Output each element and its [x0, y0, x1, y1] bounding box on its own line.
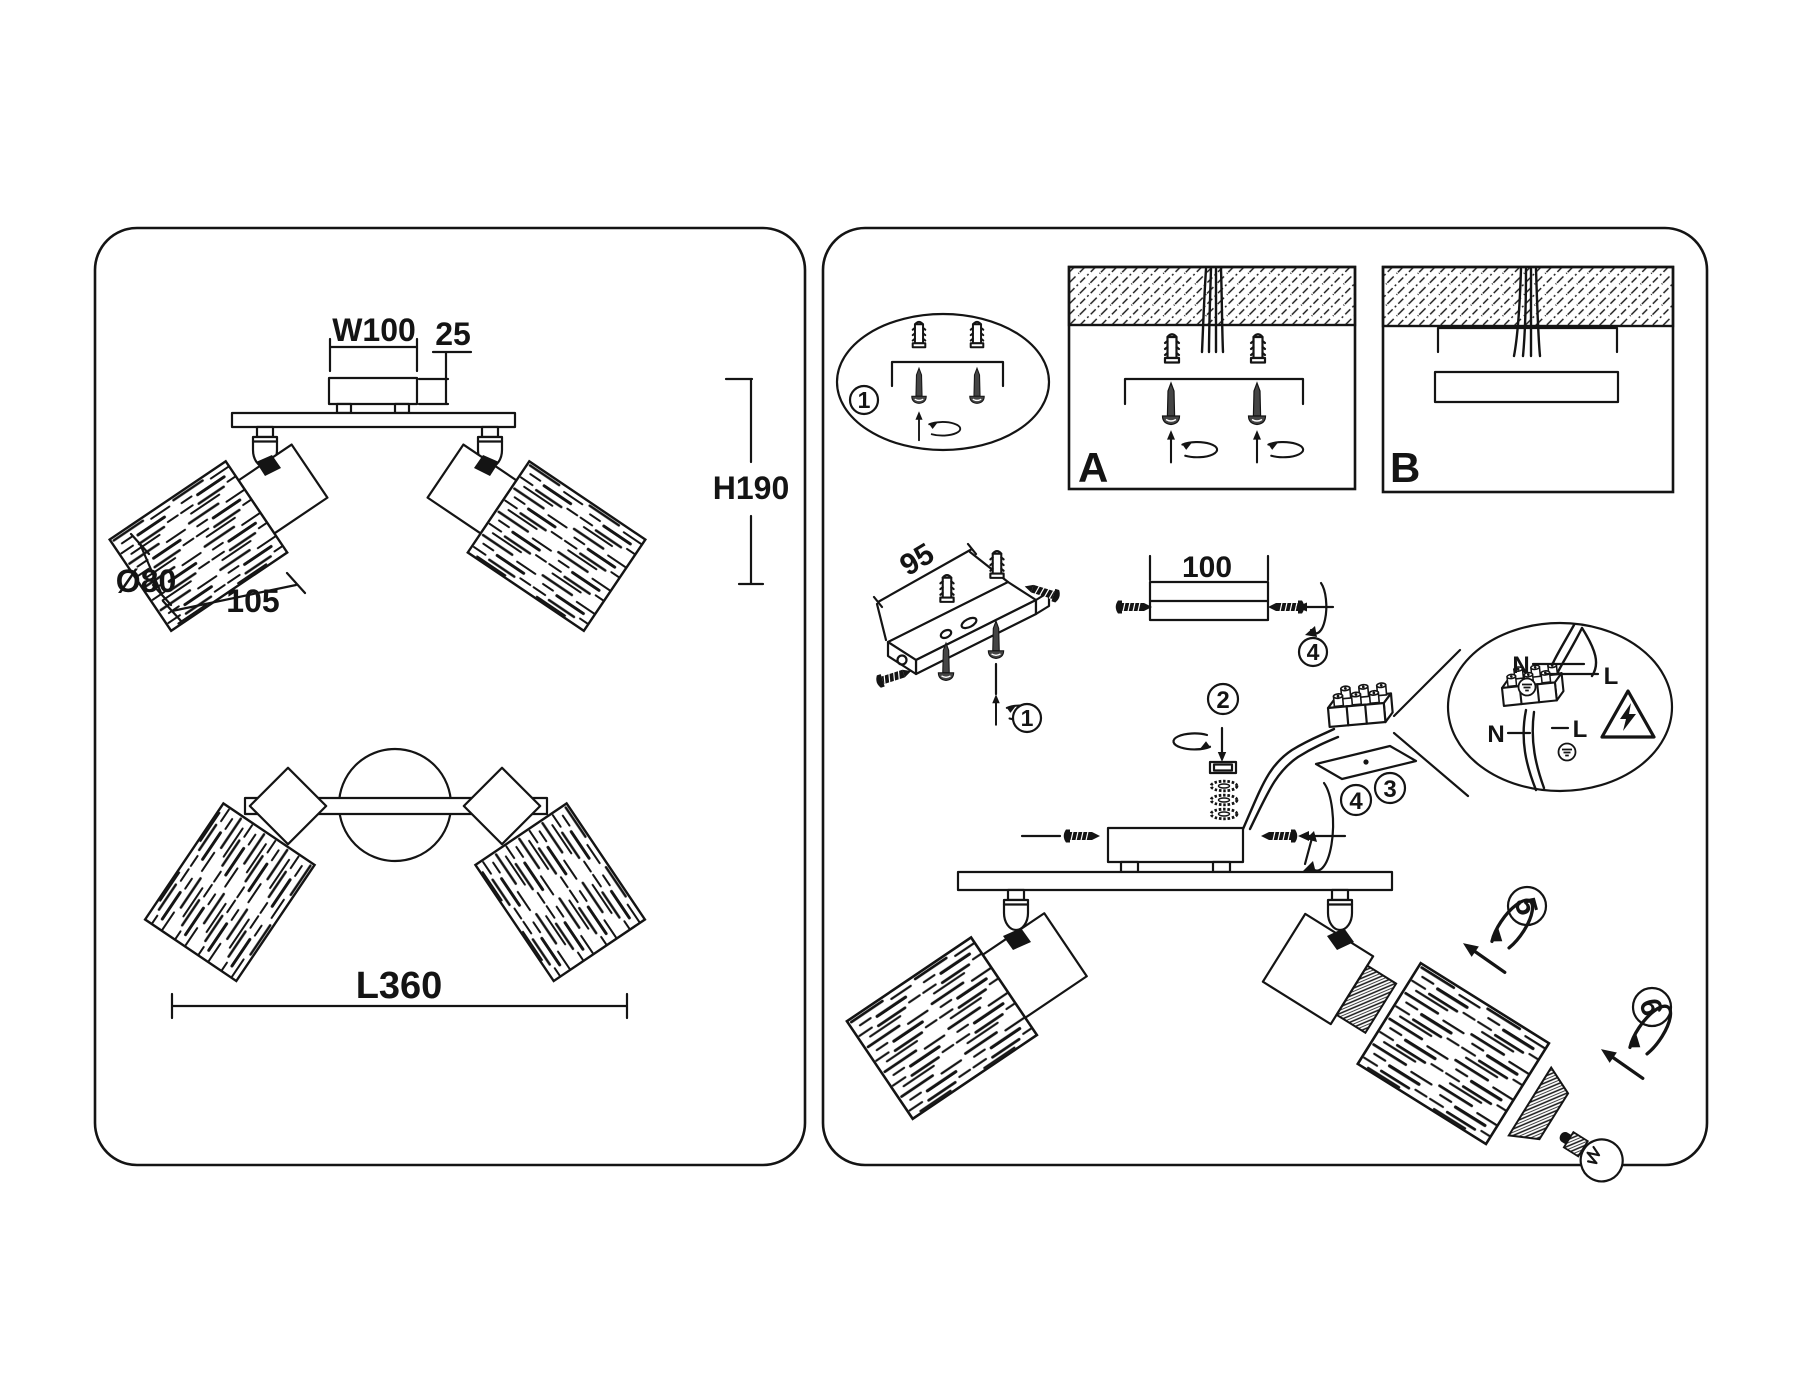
wall-anchor-icon — [1251, 334, 1265, 362]
mounting-bar — [232, 413, 515, 427]
live-label: L — [1604, 663, 1619, 690]
shade-length-label: 105 — [226, 583, 279, 619]
canopy-box — [1108, 828, 1243, 862]
shade-diameter-label: Ø80 — [116, 563, 176, 599]
instruction-sheet: W100 25 Ø80 — [0, 0, 1800, 1400]
method-b-view: B — [1383, 267, 1673, 492]
earth-symbol-icon — [1519, 679, 1536, 696]
plate-hole — [1363, 759, 1368, 764]
neutral-label: N — [1512, 652, 1529, 679]
dimension-panel: W100 25 Ø80 — [95, 228, 805, 1165]
fixture-plate — [1435, 372, 1618, 402]
washer-icon — [1211, 781, 1237, 791]
step-badge: 1 — [850, 386, 878, 414]
step-badge: 2 — [1208, 684, 1238, 714]
step-badge: 1 — [1013, 704, 1041, 732]
lamp-stem-icon — [1004, 890, 1028, 930]
canopy-depth-label: 25 — [435, 316, 471, 352]
lamp-stem-icon — [1328, 890, 1352, 930]
earth-symbol-icon — [1559, 744, 1576, 761]
live-label: L — [1573, 716, 1588, 743]
installation-panel: 1 A B 95 — [823, 228, 1707, 1212]
wiring-detail-bubble: N L N L — [1448, 623, 1672, 791]
canopy-foot — [1213, 862, 1230, 872]
ceiling-hatch — [1383, 267, 1673, 326]
diagram-svg: W100 25 Ø80 — [0, 0, 1800, 1400]
mounting-bar — [958, 872, 1392, 890]
left-panel-border — [95, 228, 805, 1165]
method-a-view: A — [1069, 267, 1355, 491]
ceiling-hatch — [1069, 267, 1355, 325]
step-number: 4 — [1307, 639, 1320, 665]
step-number: 2 — [1216, 687, 1229, 714]
wall-anchor-icon — [990, 551, 1003, 578]
canopy-width-label: 100 — [1182, 551, 1232, 584]
step-number: 1 — [858, 387, 871, 413]
canopy-width-label: W100 — [332, 312, 416, 348]
wall-anchor-icon — [971, 322, 984, 347]
canopy-foot — [395, 404, 409, 413]
wall-anchor-icon — [940, 575, 953, 602]
length-label: L360 — [356, 965, 443, 1007]
washer-icon — [1211, 809, 1237, 819]
neutral-label: N — [1487, 721, 1504, 748]
canopy-foot — [1121, 862, 1138, 872]
step-number: 1 — [1021, 705, 1034, 731]
step-number: 3 — [1383, 776, 1396, 803]
step-number: 4 — [1349, 788, 1363, 815]
method-b-label: B — [1390, 444, 1420, 491]
wall-anchor-icon — [913, 322, 926, 347]
method-a-label: A — [1078, 444, 1108, 491]
canopy-front — [329, 378, 417, 404]
washer-icon — [1211, 795, 1237, 805]
canopy-foot — [337, 404, 351, 413]
wall-anchor-icon — [1165, 334, 1179, 362]
step-badge: 3 — [1375, 773, 1405, 803]
height-label: H190 — [713, 470, 790, 506]
step-badge: 4 — [1341, 785, 1371, 815]
step-badge: 4 — [1299, 638, 1327, 666]
